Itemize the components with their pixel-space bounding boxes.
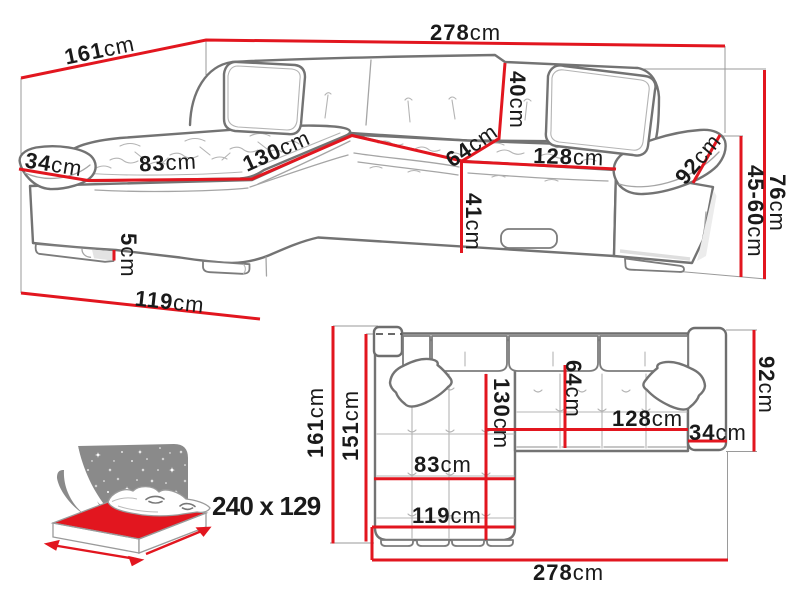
svg-text:83cm: 83cm (138, 149, 197, 177)
svg-text:119cm: 119cm (412, 503, 482, 528)
svg-text:128cm: 128cm (533, 143, 605, 170)
svg-text:278cm: 278cm (533, 560, 604, 585)
svg-text:130cm: 130cm (489, 378, 514, 449)
svg-text:34cm: 34cm (689, 420, 747, 445)
svg-text:64cm: 64cm (561, 360, 586, 418)
svg-text:76cm: 76cm (765, 174, 790, 232)
svg-text:5cm: 5cm (116, 233, 141, 278)
svg-text:83cm: 83cm (414, 452, 472, 477)
svg-text:40cm: 40cm (505, 71, 530, 129)
svg-text:240 x 129: 240 x 129 (212, 491, 321, 521)
svg-text:92cm: 92cm (754, 356, 779, 414)
svg-text:151cm: 151cm (338, 390, 363, 461)
svg-text:278cm: 278cm (430, 20, 501, 45)
svg-text:41cm: 41cm (461, 193, 486, 251)
svg-text:45-60cm: 45-60cm (743, 165, 768, 258)
svg-text:128cm: 128cm (612, 406, 683, 431)
svg-text:161cm: 161cm (303, 387, 328, 458)
